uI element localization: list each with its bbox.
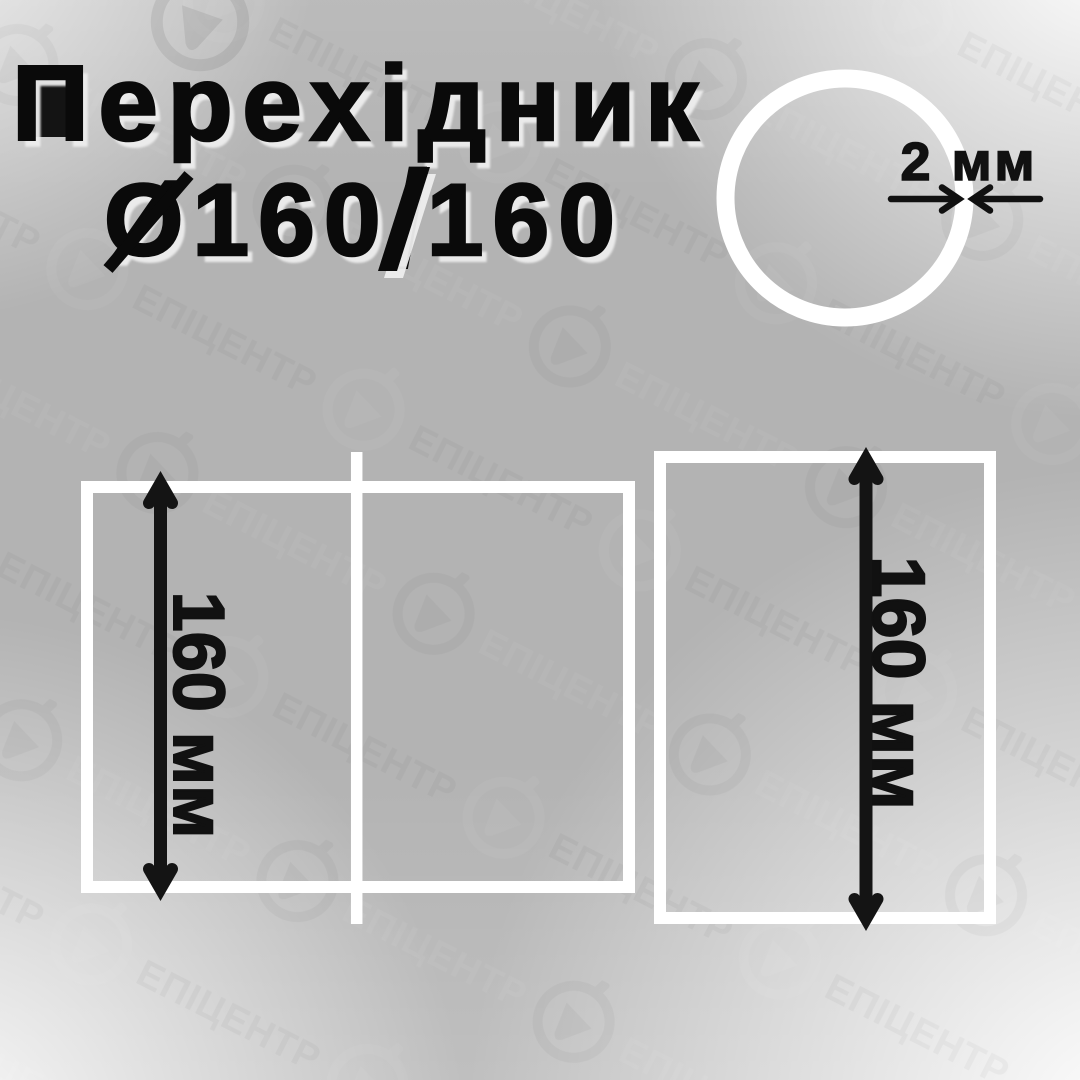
svg-text:160 мм: 160 мм [857,556,940,810]
svg-text:160 мм: 160 мм [158,592,238,839]
